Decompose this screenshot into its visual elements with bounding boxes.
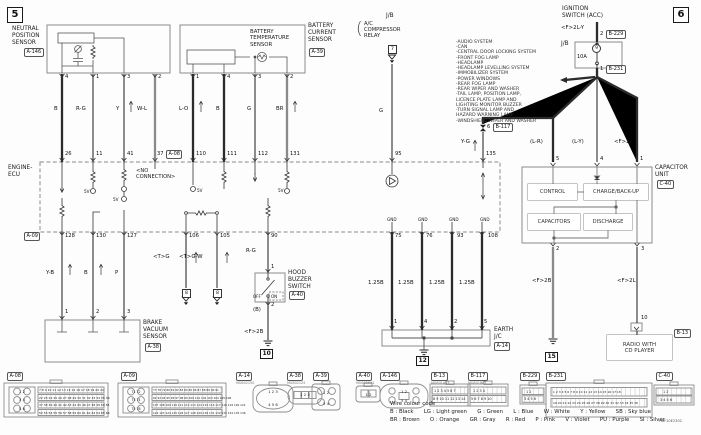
bcs-pin: 1: [196, 74, 199, 80]
a09-pin-row: 77 78 79 80 81 82 83 84 85 86 87 88 89 9…: [153, 388, 219, 392]
strip-tag-a14: A-14: [236, 372, 252, 381]
radio-label: RADIO WITH CD PLAYER: [607, 335, 672, 360]
legend-line-1: B : Black LG : Light green G : Green L :…: [390, 409, 651, 415]
neutral-position-sensor-label: NEUTRAL POSITION SENSOR: [12, 26, 40, 46]
nps-pin: 1: [96, 74, 99, 80]
ecu-pin: 90: [271, 233, 278, 239]
page-ref-8: 8: [213, 289, 222, 298]
b117-pin-row: 1 2 3 4: [473, 389, 485, 393]
strip-code-b13: MU801453: [431, 381, 449, 385]
strip-tag-a40: A-40: [356, 372, 372, 381]
wire-label: 1.25B: [459, 280, 475, 286]
ecu-pin: 11: [96, 151, 103, 157]
c40-pin-row: 3 4 5 6: [660, 398, 672, 402]
strip-tag-c40: C-40: [656, 372, 673, 381]
nps-pin: 2: [158, 74, 161, 80]
strip-tag-b13: B-13: [431, 372, 448, 381]
wire-label: BR: [276, 106, 283, 112]
strip-tag-a08: A-08: [7, 372, 23, 381]
hood-pin-2: 2: [271, 302, 274, 308]
a09-pin-row: 122 123 124 125 126 127 128 129 130 131 …: [153, 411, 246, 415]
bcs-pin: 3: [258, 74, 261, 80]
brake-pin: 1: [65, 309, 68, 315]
battery-temperature-sensor-label: BATTERY TEMPERATURE SENSOR: [250, 29, 289, 48]
ecu-pin: 95: [395, 151, 402, 157]
ecu-pin: 105: [220, 233, 230, 239]
wire-label: L-O: [179, 106, 188, 112]
earth-jc-internals: [392, 330, 482, 350]
no-connection-note: <NO CONNECTION>: [136, 168, 175, 180]
ecu-pin: 106: [189, 233, 199, 239]
earth-pin: 1: [394, 319, 397, 325]
connector-tag-a14: A-14: [494, 342, 510, 351]
wire-label: R-G: [246, 248, 256, 254]
wire-label: (L-Y): [572, 139, 584, 145]
strip-tag-a09: A-09: [121, 372, 137, 381]
strip-tag-a146: A-146: [380, 372, 400, 381]
strip-tag-b231: B-231: [546, 372, 566, 381]
ecu-pin: 37: [157, 151, 164, 157]
a09-circle-pins: 71 72 73 74 75 76: [122, 388, 150, 414]
wire-label: Y: [116, 106, 119, 112]
b13-pin-row: 8 9 10 11 12 13 14: [433, 397, 465, 401]
strip-code-a14: MU802150: [236, 381, 254, 385]
legend-title: Wire colour code: [390, 401, 435, 407]
wire-label: B: [84, 270, 88, 276]
capacitor-internals: [553, 167, 637, 243]
wire-label: 1.25B: [429, 280, 445, 286]
cap-block-discharge: DISCHARGE: [584, 214, 632, 230]
connector-tag-a08: A-08: [166, 150, 182, 159]
wire-label: (B): [253, 307, 261, 313]
nps-pin: 4: [65, 74, 68, 80]
strip-tag-a38: A-38: [287, 372, 303, 381]
brake-internals: [57, 320, 129, 332]
wiring-diagram-page: 5 6 NEUTRAL POSITION SENSOR A-146 4 1 3 …: [0, 0, 701, 435]
wire-label: (L-R): [530, 139, 543, 145]
wire-label: <T>G-W: [179, 254, 203, 260]
radio-pin-10: 10: [641, 315, 648, 321]
engine-ecu-label: ENGINE- ECU: [8, 165, 32, 179]
page-ref-right: 6: [673, 7, 689, 23]
ignition-switch-label: IGNITION SWITCH (ACC): [562, 6, 603, 20]
ac-compressor-relay-label: A/C COMPRESSOR RELAY: [364, 21, 400, 39]
a39-pins: 1 2 3 4: [314, 387, 338, 409]
earth-pin: 5: [484, 319, 487, 325]
ecu-pin: 26: [65, 151, 72, 157]
gnd-label: GND: [387, 217, 397, 222]
wire-label: B: [216, 106, 220, 112]
a08-pin-row: 52 53 54 55 56 57 58 59 60 61 62 63 64 6…: [39, 411, 110, 415]
bcs-pin: 2: [290, 74, 293, 80]
wire-label: G: [379, 108, 383, 114]
cap-out-pin: 2: [556, 246, 559, 252]
cap-pin: 5: [556, 156, 559, 162]
ecu-pin: 130: [96, 233, 106, 239]
a09-pin-row: 92 93 94 95 96 97 98 99 100 101 102 103 …: [153, 396, 231, 400]
ground-ref-10: 10: [260, 349, 273, 359]
b13-pin-row: 1 2 3 4 5 6 7: [434, 389, 456, 393]
wire-label: Y-G: [461, 139, 470, 145]
earth-pin: 2: [454, 319, 457, 325]
ecu-pin: 111: [227, 151, 237, 157]
fuse-rating: 10A: [577, 54, 587, 60]
brake-pin: 3: [127, 309, 130, 315]
a08-circle-pins: 1 2 3 4 5 6: [9, 388, 35, 414]
ign-pin-2: 2: [600, 31, 603, 37]
ecu-pin: 93: [457, 233, 464, 239]
wire-label: <F>2B: [244, 329, 263, 335]
a40-pins: 1 2: [359, 391, 378, 399]
nps-pin: 3: [127, 74, 130, 80]
ground-ref-12: 12: [416, 356, 429, 366]
wire-label: <F>2L-Y: [561, 25, 584, 31]
battery-current-sensor-label: BATTERY CURRENT SENSOR: [308, 23, 336, 43]
strip-code-b117: MU801867: [468, 381, 486, 385]
wire-label: <T>G: [153, 254, 170, 260]
a09-pin-row: 107 108 109 110 111 112 113 114 115 116 …: [153, 403, 246, 407]
ign-pin-1: 1: [600, 66, 603, 72]
a08-pin-row: 22 23 24 25 26 27 28 29 30 31 32 33 34 3…: [39, 396, 110, 400]
cap-pin: 4: [600, 156, 603, 162]
cap-block-control: CONTROL: [528, 184, 577, 200]
ecu-pin: 128: [65, 233, 75, 239]
connector-tag-b229: B-229: [606, 30, 626, 39]
b229-pin-row: 1 2: [526, 390, 531, 394]
ecu-pin: 110: [196, 151, 206, 157]
strip-tag-b229: B-229: [520, 372, 540, 381]
c40-pin-row: 1 2: [663, 390, 668, 394]
connector-tag-a40: A-40: [289, 291, 305, 300]
5v-label: 5V: [113, 197, 119, 202]
connector-tag-b13: B-13: [674, 329, 691, 338]
cap-block-capacitors: CAPACITORS: [528, 214, 580, 230]
ground-symbols: [264, 339, 558, 355]
feed-pin-6: 6: [487, 124, 490, 130]
wire-label: <F>2L: [614, 139, 633, 145]
connector-tag-a146: A-146: [24, 48, 44, 57]
5v-label: 5V: [197, 188, 203, 193]
a14-pins: 1 2 3 4 5 6: [256, 386, 290, 411]
brake-vacuum-sensor-label: BRAKE VACUUM SENSOR: [143, 320, 168, 340]
ecu-pin: 135: [486, 151, 496, 157]
wire-label: R-G: [76, 106, 86, 112]
a08-pin-row: 7 8 9 10 11 12 13 14 15 16 17 18 19 20 2…: [39, 388, 104, 392]
strip-tag-a39: A-39: [313, 372, 329, 381]
page-ref-7: 7: [388, 45, 397, 54]
b117-pin-row: 5 6 7 8 9 10: [471, 397, 492, 401]
earth-pin: 4: [424, 319, 427, 325]
gnd-label: GND: [480, 217, 490, 222]
page-ref-left: 5: [7, 7, 23, 23]
5v-label: 5V: [278, 188, 284, 193]
wire-label: <F>2B: [532, 278, 551, 284]
legend-line-2: BR : Brown O : Orange GR : Gray R : Red …: [390, 417, 665, 423]
fuse-number: 9: [592, 44, 601, 53]
wire-label: W-L: [137, 106, 147, 112]
ground-ref-15: 15: [545, 352, 558, 362]
connector-tag-b231: B-231: [606, 65, 626, 74]
connector-tag-b117: B-117: [493, 123, 513, 132]
wire-label: 1.25B: [368, 280, 384, 286]
capacitor-unit-label: CAPACITOR UNIT: [655, 165, 688, 179]
cap-pin: 1: [640, 156, 643, 162]
connector-tag-a09: A-09: [24, 232, 40, 241]
wire-label: Y-B: [46, 270, 54, 276]
powered-systems-list: -AUDIO SYSTEM -CAN -CENTRAL DOOR LOCKING…: [456, 40, 564, 124]
wire-label: B: [54, 106, 58, 112]
wire-label: <F>2L: [617, 278, 636, 284]
wire-label: G: [247, 106, 251, 112]
jb-label: J/B: [386, 13, 394, 20]
cap-out-pin: 3: [641, 246, 644, 252]
cap-block-charge: CHARGE/BACK-UP: [584, 184, 648, 200]
bcs-internals: [187, 50, 287, 73]
gnd-label: GND: [449, 217, 459, 222]
connector-tag-c40: C-40: [657, 180, 674, 189]
ecu-pin: 41: [127, 151, 134, 157]
gnd-label: GND: [418, 217, 428, 222]
bcs-pin: 4: [227, 74, 230, 80]
a08-pin-row: 37 38 39 40 41 42 43 44 45 46 47 48 49 5…: [39, 403, 110, 407]
connector-tag-a39: A-39: [309, 48, 325, 57]
nps-internals: [58, 33, 124, 73]
hood-buzzer-switch-label: HOOD BUZZER SWITCH: [288, 270, 312, 290]
strip-code-a38: MU802125: [287, 381, 305, 385]
hood-pin-1: 1: [271, 264, 274, 270]
doc-code: H8F10E230C: [659, 419, 682, 423]
b231-pin-row: 19 20 21 22 23 24 25 26 27 28 29 30 31 3…: [553, 401, 638, 405]
flow-arrows: [68, 101, 477, 275]
b231-pin-row: 1 2 3 4 5 6 7 8 9 10 11 12 13 14 15 16 1…: [553, 390, 621, 394]
component-boxes: [40, 25, 672, 362]
ecu-pin: 127: [127, 233, 137, 239]
5v-label: 5V: [84, 189, 90, 194]
ecu-pin: 112: [258, 151, 268, 157]
earth-jc-label: EARTH J/C: [494, 327, 513, 341]
wire-label: P: [115, 270, 118, 276]
strip-tag-b117: B-117: [468, 372, 488, 381]
strip-code-a40: MU802501: [356, 381, 374, 385]
switch-on-label: ON: [271, 294, 277, 299]
ecu-pin: 75: [395, 233, 402, 239]
connector-tag-a38: A-38: [145, 343, 161, 352]
ecu-pin: 76: [426, 233, 433, 239]
wire-label: 1.25B: [398, 280, 414, 286]
brake-pin: 2: [96, 309, 99, 315]
ecu-pin: 108: [488, 233, 498, 239]
relay-brace: (: [356, 21, 363, 38]
b229-pin-row: 3 4 5 6: [524, 397, 536, 401]
switch-off-label: OFF: [253, 294, 261, 299]
page-ref-8: 8: [182, 289, 191, 298]
ecu-pin: 131: [290, 151, 300, 157]
